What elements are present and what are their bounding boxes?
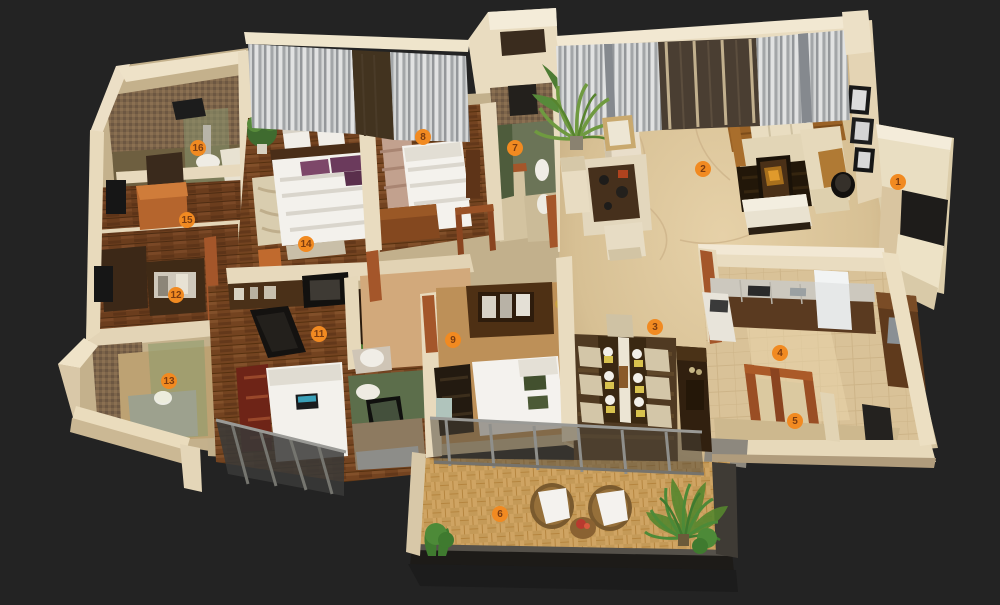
svg-text:13: 13 (163, 376, 175, 387)
svg-text:1: 1 (895, 177, 901, 188)
svg-text:5: 5 (792, 416, 798, 427)
svg-text:14: 14 (300, 239, 312, 250)
svg-text:7: 7 (512, 143, 518, 154)
svg-text:11: 11 (314, 329, 325, 340)
svg-text:16: 16 (192, 143, 204, 154)
svg-text:3: 3 (652, 322, 658, 333)
svg-text:8: 8 (420, 132, 426, 143)
svg-text:4: 4 (777, 348, 783, 359)
svg-text:15: 15 (181, 215, 193, 226)
svg-text:6: 6 (497, 509, 503, 520)
svg-text:9: 9 (450, 335, 456, 346)
svg-text:2: 2 (700, 164, 706, 175)
svg-text:12: 12 (170, 290, 182, 301)
